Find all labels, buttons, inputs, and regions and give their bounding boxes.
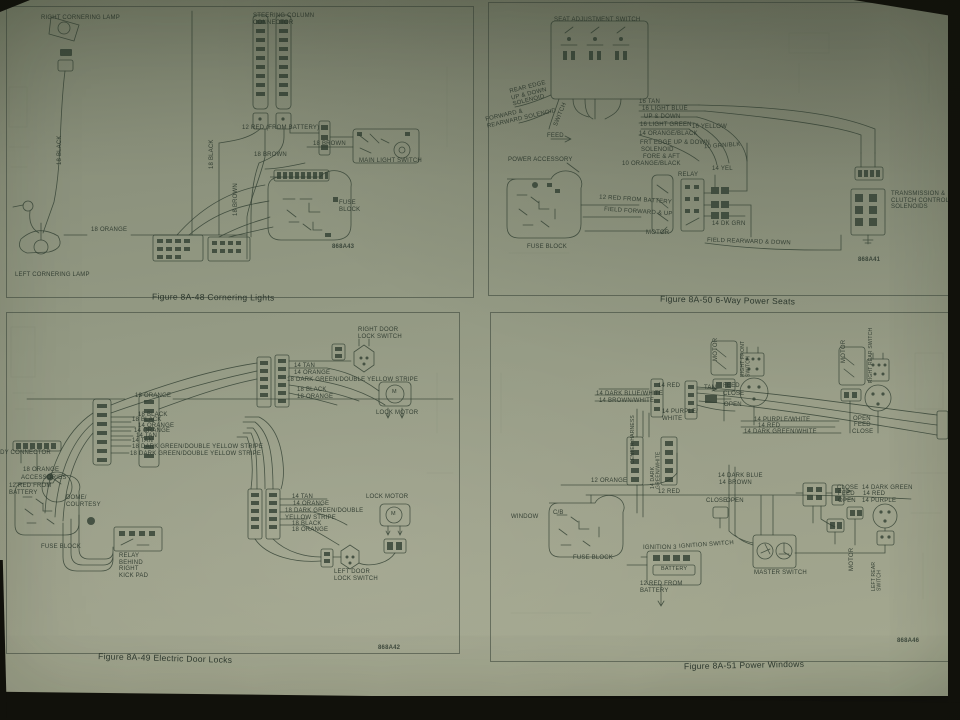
connector-strips-lower — [248, 489, 280, 539]
wire-label-14-orange: 14 ORANGE — [294, 370, 330, 377]
open-label: OPEN — [724, 402, 742, 409]
wire-label-18-black-vertical: 18 BLACK — [209, 133, 216, 169]
wire-label-18-dkgrn: 18 DARK GREEN/DOUBLE YELLOW STRIPE — [287, 377, 418, 384]
wire-label-18-black-vertical: 18 BLACK — [57, 129, 64, 165]
center-harness-label: CENTER HARNESS — [631, 402, 637, 464]
wire-label-14-dark-blue: 14 DARK BLUE — [718, 473, 763, 480]
open-label: OPEN — [838, 498, 856, 505]
lock-motor-label: LOCK MOTOR — [376, 410, 418, 417]
ignition-switch-symbol — [641, 551, 701, 606]
figure-caption: Figure 8A-48 Cornering Lights — [152, 292, 275, 303]
open-label: OPEN — [726, 498, 744, 505]
power-accessory-label: POWER ACCESSORY — [508, 157, 573, 164]
motor-label: MOTOR — [713, 327, 720, 361]
door-locks-diagram — [7, 313, 459, 653]
relay-symbol — [114, 527, 162, 551]
wire-label: 18 DARK GREEN/DOUBLE YELLOW STRIPE — [130, 451, 261, 458]
close-label: CLOSE — [852, 429, 873, 436]
battery-label: BATTERY — [661, 566, 687, 572]
tan-label: TAN — [704, 385, 716, 392]
up-down-label: UP & DOWN — [644, 114, 680, 121]
wire-label-14-brown: 14 BROWN — [719, 480, 752, 487]
fuse-block-label: FUSE BLOCK — [527, 244, 567, 251]
fuse-block-label: FUSE BLOCK — [41, 544, 81, 551]
right-door-lock-switch-label: RIGHT DOOR LOCK SWITCH — [358, 327, 402, 340]
feed-label: FEED — [838, 491, 855, 498]
wire-label-18-brown: 18 BROWN — [254, 152, 287, 159]
wire-label-14-purple-white: 14 PURPLE/ WHITE — [662, 409, 698, 422]
close-label: CLOSE — [706, 498, 727, 505]
ignition-3-label: IGNITION 3 — [643, 545, 677, 552]
wire-label-18-brown: 18 BROWN — [313, 141, 346, 148]
solenoid-label: SOLENOID — [641, 147, 674, 154]
wire-label-14-orange: 14 ORANGE — [293, 501, 329, 508]
right-rear-switch-label: RIGHT REAR SWITCH — [869, 327, 875, 383]
wire-label-16-yellow: 16 YELLOW — [692, 124, 727, 131]
feed-label: FEED — [723, 383, 740, 390]
main-light-switch-label: MAIN LIGHT SWITCH — [359, 158, 422, 165]
wire-label-18-brown-vertical: 18 BROWN — [233, 176, 240, 216]
steering-column-connector-symbol — [253, 15, 291, 129]
left-door-lock-switch-label: LEFT DOOR LOCK SWITCH — [334, 569, 378, 582]
wire-label-10-orange-black: 10 ORANGE/BLACK — [622, 161, 681, 168]
transmission-solenoids-label: TRANSMISSION & CLUTCH CONTROL SOLENOIDS — [891, 191, 949, 211]
steering-column-connector-label: STEERING COLUMN CONNECTOR — [253, 13, 314, 26]
wire-label-12-red: 12 RED — [658, 489, 680, 496]
wire-label-18-orange: 18 ORANGE — [297, 394, 333, 401]
left-rear-switch-label: LEFT REAR SWITCH — [872, 547, 883, 591]
window-label: WINDOW — [511, 514, 539, 521]
feed-label: FEED — [854, 422, 871, 429]
transmission-solenoids-symbol — [851, 153, 885, 244]
body-connector-label: BODY CONNECTOR — [0, 450, 51, 457]
wire-label-14-tan: 14 TAN — [294, 363, 315, 370]
right-cornering-lamp-label: RIGHT CORNERING LAMP — [41, 15, 120, 22]
wire-label-18-dkgrn: 18 DARK GREEN/DOUBLE YELLOW STRIPE — [285, 508, 363, 521]
accessories-label: ACCESSORIES — [21, 475, 67, 482]
right-front-switch-label: RIGHT FRONT SWITCH — [741, 321, 752, 377]
frt-edge-up-down-label: FRT EDGE UP & DOWN — [640, 140, 710, 147]
wire-label-12-red-from-battery: 12 RED FROM BATTERY — [9, 483, 52, 496]
part-number: 868A41 — [858, 257, 880, 264]
motor-label: MOTOR — [646, 230, 669, 237]
dome-courtesy-label: DOME/ COURTESY — [66, 495, 101, 508]
wire-label-12-red: 12 RED (FROM BATTERY) — [242, 125, 319, 132]
relay-kick-pad-label: RELAY BEHIND RIGHT KICK PAD — [119, 553, 148, 580]
fuse-block-label: FUSE BLOCK — [573, 555, 613, 562]
left-cornering-lamp-symbol — [13, 201, 60, 254]
master-switch-symbol — [753, 535, 796, 568]
cb-label: C/B — [553, 510, 564, 517]
wire-label-14-purple: 14 PURPLE — [862, 498, 896, 505]
seat-adjustment-switch-label: SEAT ADJUSTMENT SWITCH — [554, 17, 640, 24]
figure-panel-power-seats: SEAT ADJUSTMENT SWITCH REAR EDGE UP & DO… — [488, 2, 954, 296]
wire-label-14-orange-black: 14 ORANGE/BLACK — [639, 131, 698, 138]
part-number: 868A42 — [378, 645, 400, 652]
wire-label-14-red: 14 RED — [863, 491, 885, 498]
motor-label: MOTOR — [841, 329, 848, 363]
wire-label-12-orange: 12 ORANGE — [591, 478, 627, 485]
motor-m-glyph: M — [392, 389, 397, 395]
wire-label-18-orange: 18 ORANGE — [292, 527, 328, 534]
feed-label: FEED — [547, 133, 564, 140]
relay-label: RELAY — [678, 172, 698, 179]
left-cornering-lamp-label: LEFT CORNERING LAMP — [15, 272, 90, 279]
wire-label-14-dk-grn: 14 DK GRN — [712, 221, 745, 228]
fuse-block-symbol — [507, 171, 582, 238]
wire-label-16-light-green: 16 LIGHT GREEN — [640, 122, 692, 129]
wire-label-12-red-from-battery: 12 RED FROM BATTERY — [640, 581, 683, 594]
close-label: CLOSE — [723, 391, 744, 398]
right-door-lock-switch-symbol — [332, 339, 374, 372]
wire-label: 18 DARK GREEN/DOUBLE YELLOW STRIPE — [132, 444, 263, 451]
photo-edge-shadow-right — [948, 0, 960, 720]
fore-aft-label: FORE & AFT — [643, 154, 680, 161]
wire-label-16-tan: 16 TAN — [639, 99, 660, 106]
cornering-lights-diagram — [7, 7, 473, 297]
wire-label-16-light-blue: 16 LIGHT BLUE — [642, 106, 688, 113]
bottom-connector-blocks — [153, 235, 250, 261]
right-cornering-lamp-symbol — [49, 17, 79, 71]
motor-label: MOTOR — [849, 537, 856, 571]
relay-symbol — [681, 179, 704, 231]
wire-label-18-orange-line: 18 ORANGE — [135, 393, 171, 400]
wire-label-14-yel: 14 YEL — [712, 166, 733, 173]
figure-panel-power-windows: MOTOR RIGHT FRONT SWITCH MOTOR RIGHT REA… — [490, 312, 957, 662]
photographed-manual-page: { "colors": { "paper": "#9aa089", "ink":… — [0, 0, 960, 720]
part-number: 868A46 — [897, 638, 919, 645]
wire-label-14-tan: 14 TAN — [292, 494, 313, 501]
wire-label-18-orange: 18 ORANGE — [91, 227, 127, 234]
master-switch-label: MASTER SWITCH — [754, 570, 807, 577]
wire-label-14-red: 14 RED — [658, 383, 680, 390]
wire-label-14-dark-green-white: 14 DARK GREEN/WHITE — [744, 429, 817, 436]
wire-label-18-orange: 18 ORANGE — [23, 467, 59, 474]
fuse-block-label: FUSE BLOCK — [339, 200, 360, 213]
left-rear-switch-symbol — [795, 504, 897, 553]
figure-panel-door-locks: RIGHT DOOR LOCK SWITCH 14 TAN 14 ORANGE … — [6, 312, 460, 654]
wire-label-14-brown-white: 14 BROWN/WHITE — [599, 398, 654, 405]
wire-label-14-dark-blue-white: 14 DARK BLUE/WHITE — [596, 391, 663, 398]
motor-m-glyph: M — [391, 511, 396, 517]
lock-motor-label: LOCK MOTOR — [366, 494, 408, 501]
wire-label-14-dark-green-white-vertical: 14 DARK GREEN/WHITE — [651, 431, 662, 489]
figure-panel-cornering-lights: RIGHT CORNERING LAMP STEERING COLUMN CON… — [6, 6, 474, 298]
wire-label-18-black: 18 BLACK — [297, 387, 327, 394]
part-number: 868A43 — [332, 244, 354, 251]
